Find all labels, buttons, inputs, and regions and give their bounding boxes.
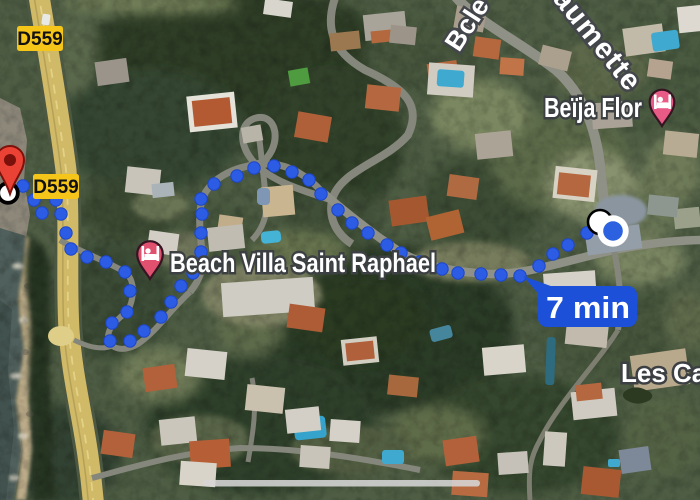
svg-text:D559: D559: [33, 177, 78, 198]
svg-text:Beach Villa Saint Raphael: Beach Villa Saint Raphael: [170, 248, 436, 278]
svg-text:Les Cal: Les Cal: [621, 358, 700, 388]
svg-text:7 min: 7 min: [546, 290, 630, 325]
svg-text:D559: D559: [17, 29, 62, 50]
svg-text:Beïja Flor: Beïja Flor: [544, 92, 642, 123]
